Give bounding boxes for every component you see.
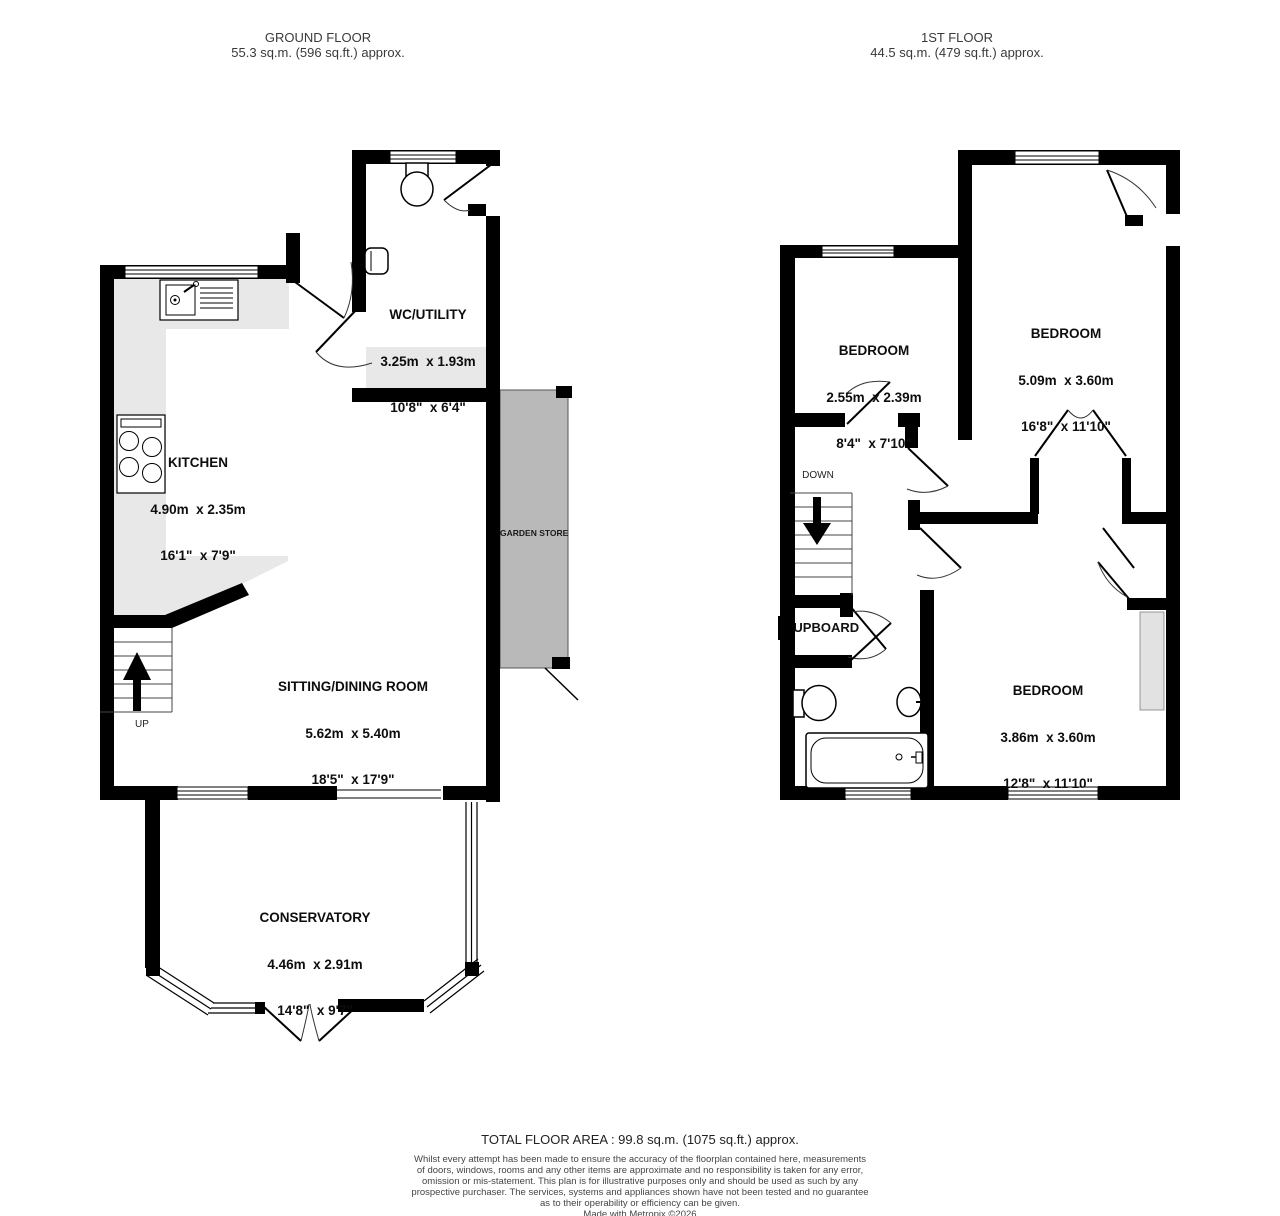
- wc-window: [390, 151, 456, 163]
- kitchen-window: [125, 266, 258, 278]
- bedroom-small-window: [822, 246, 894, 257]
- metropix-credit: Made with Metropix ©2026: [340, 1209, 940, 1216]
- room-dims-imperial: 10'8" x 6'4": [328, 400, 528, 416]
- cupboard-label: CUPBOARD: [784, 620, 859, 635]
- garden-store-label: GARDEN STORE: [500, 528, 568, 538]
- bathroom-door: [850, 611, 891, 661]
- room-name: SITTING/DINING ROOM: [228, 679, 478, 695]
- floorplan-canvas: GROUND FLOOR 55.3 sq.m. (596 sq.ft.) app…: [0, 0, 1280, 1216]
- disclaimer-line: Whilst every attempt has been made to en…: [340, 1154, 940, 1165]
- room-dims-metric: 4.90m x 2.35m: [98, 502, 298, 518]
- room-dims-metric: 5.09m x 3.60m: [966, 373, 1166, 389]
- room-name: BEDROOM: [948, 683, 1148, 699]
- bedroom-large-window: [1015, 151, 1099, 164]
- disclaimer-line: omission or mis-statement. This plan is …: [340, 1176, 940, 1187]
- room-name: BEDROOM: [774, 343, 974, 359]
- first-floor-area: 44.5 sq.m. (479 sq.ft.) approx.: [807, 45, 1107, 60]
- stairs-down-label: DOWN: [788, 470, 848, 481]
- bedroom-rear-recess-door: [1098, 528, 1134, 600]
- first-floor-header: 1ST FLOOR 44.5 sq.m. (479 sq.ft.) approx…: [807, 30, 1107, 60]
- room-name: KITCHEN: [98, 455, 298, 471]
- room-dims-metric: 3.25m x 1.93m: [328, 354, 528, 370]
- room-label-bedroom-small: BEDROOM 2.55m x 2.39m 8'4" x 7'10": [774, 312, 974, 467]
- room-dims-metric: 5.62m x 5.40m: [228, 726, 478, 742]
- bathroom-window: [845, 787, 911, 799]
- garden-store-area: [500, 386, 578, 700]
- room-dims-imperial: 16'1" x 7'9": [98, 548, 298, 564]
- room-dims-imperial: 14'8" x 9'7": [190, 1003, 440, 1019]
- stairs-up-label: UP: [122, 719, 162, 730]
- disclaimer-line: of doors, windows, rooms and any other i…: [340, 1165, 940, 1176]
- room-dims-metric: 3.86m x 3.60m: [948, 730, 1148, 746]
- ground-floor-title: GROUND FLOOR: [168, 30, 468, 45]
- room-label-bedroom-large: BEDROOM 5.09m x 3.60m 16'8" x 11'10": [966, 295, 1166, 450]
- room-name: CONSERVATORY: [190, 910, 440, 926]
- room-dims-imperial: 8'4" x 7'10": [774, 436, 974, 452]
- wc-entry-door: [444, 164, 492, 211]
- first-floor-title: 1ST FLOOR: [807, 30, 1107, 45]
- room-dims-imperial: 18'5" x 17'9": [228, 772, 478, 788]
- first-fixtures: [793, 686, 928, 789]
- room-dims-metric: 4.46m x 2.91m: [190, 957, 440, 973]
- room-dims-imperial: 16'8" x 11'10": [966, 419, 1166, 435]
- room-dims-metric: 2.55m x 2.39m: [774, 390, 974, 406]
- total-floor-area: TOTAL FLOOR AREA : 99.8 sq.m. (1075 sq.f…: [390, 1132, 890, 1147]
- bedroom-large-side-door: [1107, 170, 1156, 219]
- wc-toilet-icon: [401, 163, 433, 206]
- up-arrow-icon: [123, 652, 151, 711]
- bathtub-icon: [806, 733, 928, 788]
- wc-basin-icon: [365, 248, 388, 274]
- disclaimer-line: as to their operability or efficiency ca…: [340, 1198, 940, 1209]
- ground-floor-header: GROUND FLOOR 55.3 sq.m. (596 sq.ft.) app…: [168, 30, 468, 60]
- room-label-wc-utility: WC/UTILITY 3.25m x 1.93m 10'8" x 6'4": [328, 276, 528, 431]
- room-label-sitting-dining: SITTING/DINING ROOM 5.62m x 5.40m 18'5" …: [228, 648, 478, 803]
- kitchen-sink-icon: [160, 280, 238, 320]
- room-label-bedroom-rear: BEDROOM 3.86m x 3.60m 12'8" x 11'10": [948, 652, 1148, 807]
- bathroom-toilet-icon: [793, 686, 836, 721]
- disclaimer-line: prospective purchaser. The services, sys…: [340, 1187, 940, 1198]
- cupboard-wall-patch: [778, 616, 795, 640]
- room-name: BEDROOM: [966, 326, 1166, 342]
- room-label-conservatory: CONSERVATORY 4.46m x 2.91m 14'8" x 9'7": [190, 879, 440, 1034]
- room-dims-imperial: 12'8" x 11'10": [948, 776, 1148, 792]
- room-name: WC/UTILITY: [328, 307, 528, 323]
- ground-floor-area: 55.3 sq.m. (596 sq.ft.) approx.: [168, 45, 468, 60]
- bedroom-rear-door: [917, 528, 961, 578]
- stairs-down: [790, 493, 852, 595]
- room-label-kitchen: KITCHEN 4.90m x 2.35m 16'1" x 7'9": [98, 424, 298, 579]
